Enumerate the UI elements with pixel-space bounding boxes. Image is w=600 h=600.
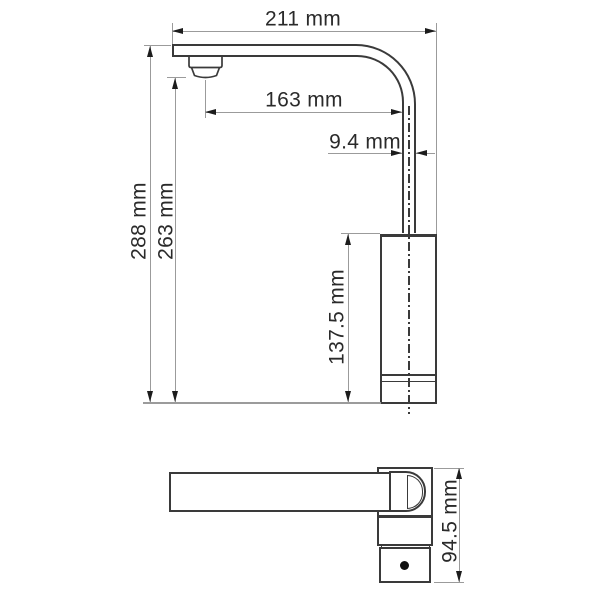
- arrowhead-94-right: [416, 150, 427, 156]
- arrowhead-945-top: [456, 468, 462, 479]
- dim-label-side-view-height: 94.5 mm: [440, 479, 461, 563]
- arrowhead-945-bottom: [456, 571, 462, 582]
- centerline: [408, 106, 410, 414]
- arrowhead-263-bottom: [172, 391, 178, 402]
- arrowhead-211-right: [425, 28, 436, 34]
- extension-line-945-bottom: [434, 582, 464, 583]
- dim-label-pipe-width: 9.4 mm: [329, 132, 401, 153]
- dim-label-total-reach: 211 mm: [265, 9, 341, 30]
- dim-label-spout-height: 263 mm: [156, 182, 177, 260]
- dimension-line-211: [172, 31, 436, 32]
- arrowhead-211-left: [172, 28, 183, 34]
- arrowhead-1375-bottom: [345, 391, 351, 402]
- ground-line: [143, 402, 381, 404]
- dim-label-body-height: 137.5 mm: [327, 269, 348, 365]
- dim-label-spout-reach: 163 mm: [265, 90, 343, 111]
- arrowhead-163-left: [205, 109, 216, 115]
- spout-end-cap: [172, 44, 174, 57]
- dimension-line-163: [205, 112, 402, 113]
- set-screw-dot: [400, 561, 409, 570]
- arrowhead-163-right: [391, 109, 402, 115]
- aerator: [188, 57, 223, 80]
- arrowhead-263-top: [172, 78, 178, 89]
- handle-lever: [169, 472, 391, 512]
- extension-line-211-right: [436, 23, 437, 234]
- dim-label-total-height: 288 mm: [129, 182, 150, 260]
- arrowhead-288-top: [147, 46, 153, 57]
- faucet-technical-drawing: 211 mm 163 mm 9.4 mm 288 mm 263 mm 137.5…: [0, 0, 600, 600]
- arrowhead-1375-top: [345, 234, 351, 245]
- arrowhead-288-bottom: [147, 391, 153, 402]
- handle-view-block-middle: [377, 516, 433, 546]
